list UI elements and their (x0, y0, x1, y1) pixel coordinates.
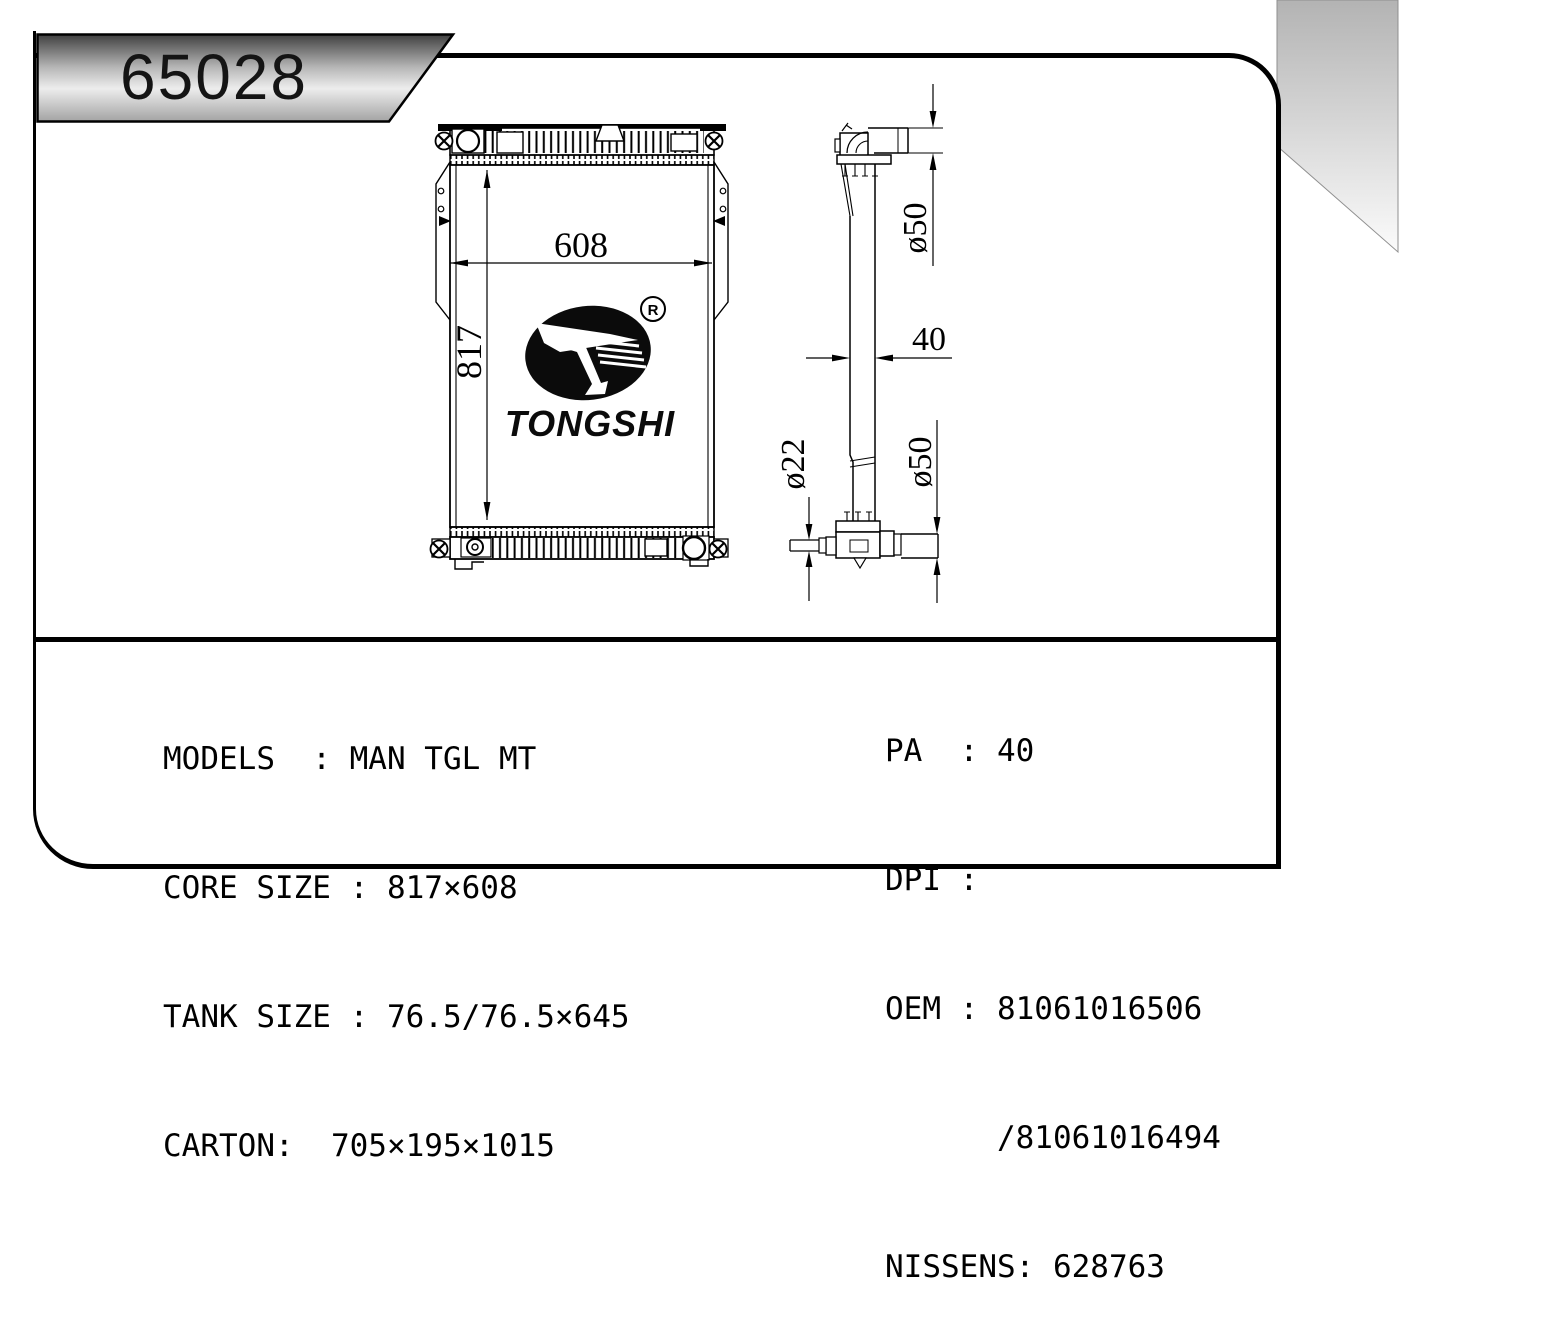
corner-decoration (1270, 0, 1400, 260)
spec-divider-line (36, 637, 1278, 642)
spec-line-models: MODELS : MAN TGL MT (163, 738, 630, 781)
spec-line-nissens: NISSENS: 628763 (885, 1246, 1221, 1289)
spec-line-oem: OEM : 81061016506 (885, 988, 1221, 1031)
part-number: 65028 (36, 33, 392, 121)
spec-line-carton: CARTON: 705×195×1015 (163, 1125, 630, 1168)
corner-ribbon (1277, 0, 1398, 252)
spec-line-dpi: DPI : (885, 859, 1221, 902)
spec-line-tank-size: TANK SIZE : 76.5/76.5×645 (163, 996, 630, 1039)
spec-line-pa: PA : 40 (885, 730, 1221, 773)
spec-block-right: PA : 40 DPI : OEM : 81061016506 /8106101… (885, 644, 1221, 1332)
spec-line-oem-alt: /81061016494 (885, 1117, 1221, 1160)
part-number-badge: 65028 (36, 33, 456, 123)
spec-block-left: MODELS : MAN TGL MT CORE SIZE : 817×608 … (163, 652, 630, 1211)
